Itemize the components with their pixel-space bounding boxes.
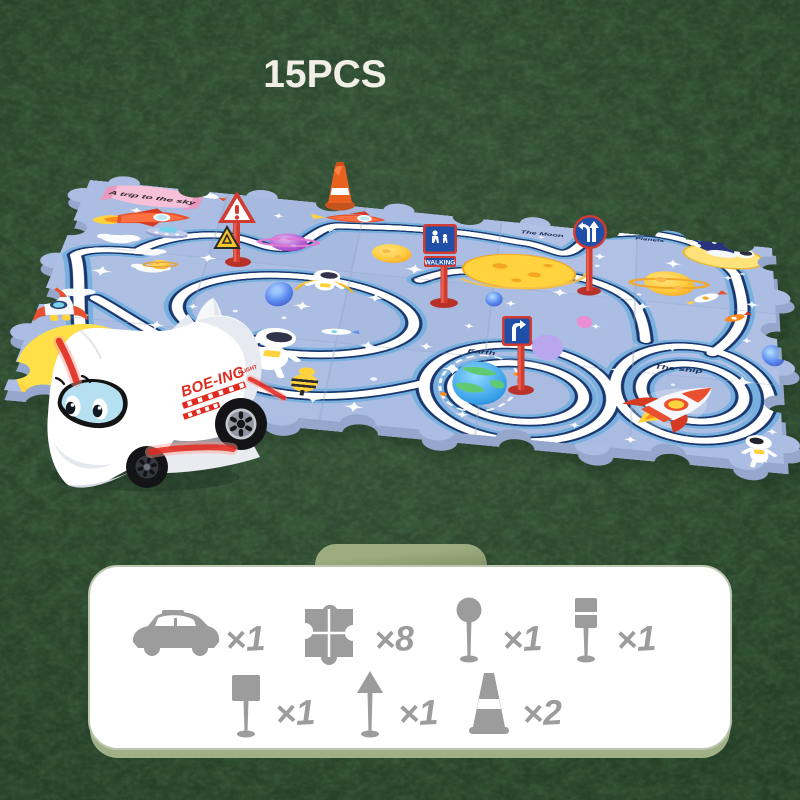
svg-text:×8: ×8 xyxy=(373,619,415,660)
svg-text:×1: ×1 xyxy=(397,693,439,734)
svg-text:×1: ×1 xyxy=(274,693,316,734)
svg-text:×1: ×1 xyxy=(224,619,266,660)
svg-text:×1: ×1 xyxy=(615,619,657,660)
svg-text:×1: ×1 xyxy=(501,619,543,660)
svg-text:×2: ×2 xyxy=(521,693,563,734)
